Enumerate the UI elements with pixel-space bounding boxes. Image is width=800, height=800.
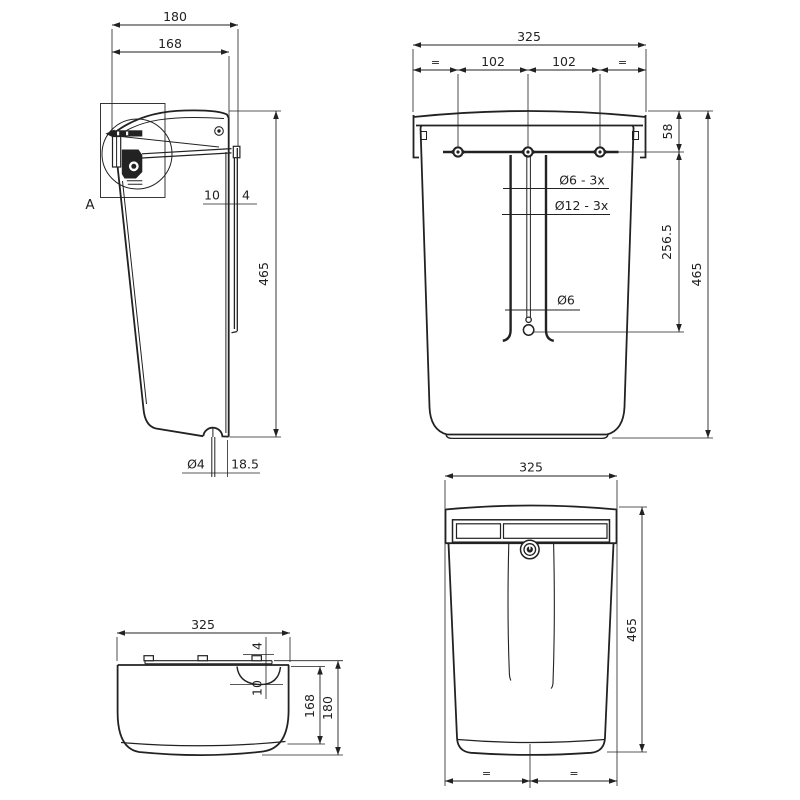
channel-walls [503, 155, 554, 341]
dim-label-top-overall-depth: 180 [320, 696, 335, 720]
technical-drawing-canvas: 180 168 465 10 4 Ø4 18.5 A [0, 0, 800, 800]
dim-label-hole-small: Ø6 - 3x [559, 173, 605, 188]
dim-label-rear-equal-left: = [431, 56, 440, 69]
front-body-bottom-inner [458, 740, 605, 743]
dim-label-keyhole: Ø6 [557, 293, 575, 308]
side-extension-lines [112, 29, 281, 477]
channel-slot-lines [527, 155, 531, 322]
dim-label-rear-slot-length: 256.5 [659, 224, 674, 260]
dim-label-side-body-depth: 168 [158, 36, 182, 51]
dim-label-top-recess-depth: 10 [250, 680, 265, 696]
dim-label-front-height: 465 [624, 618, 639, 642]
detail-a-label: A [85, 197, 95, 213]
dim-label-side-gap-plate: 4 [242, 188, 250, 203]
side-view [101, 25, 282, 477]
lock-cylinder-core [131, 164, 136, 169]
dim-label-side-drain-offset: 18.5 [231, 457, 259, 472]
lock-mechanism-bar-slit [117, 132, 119, 136]
dim-label-side-drain-hole: Ø4 [187, 457, 205, 472]
dim-label-side-gap-back: 10 [204, 188, 220, 203]
dim-label-side-overall-depth: 180 [163, 9, 187, 24]
wall-hook [233, 146, 240, 157]
dim-label-rear-height: 465 [689, 263, 704, 287]
drain-pin [212, 437, 215, 477]
dim-label-top-width: 325 [191, 617, 215, 632]
mounting-hole-right [592, 147, 609, 156]
mounting-hole-center [520, 147, 537, 156]
dim-label-rear-top-offset: 58 [660, 124, 675, 140]
top-tab-center [198, 656, 207, 661]
dim-label-rear-spacing-right: 102 [552, 54, 576, 69]
front-lock-slit [529, 546, 530, 550]
keyhole-top [526, 317, 531, 322]
dim-label-rear-width: 325 [517, 29, 541, 44]
front-body-creases [508, 543, 554, 688]
dim-label-front-equal-left: = [482, 767, 491, 780]
top-body-outline [118, 665, 289, 755]
dim-label-top-tab-height: 4 [250, 642, 265, 650]
dim-label-rear-spacing-left: 102 [481, 54, 505, 69]
top-tab-right [252, 656, 261, 661]
lock-mechanism-bar-slit2 [126, 132, 128, 136]
lock-under-lines [127, 181, 143, 184]
dim-label-rear-equal-right: = [618, 56, 627, 69]
mail-slot-panel-right [504, 524, 608, 539]
top-body-bottom-inner [121, 742, 286, 746]
top-tab-left [144, 656, 153, 661]
lid-screw-dot [217, 129, 220, 132]
keyhole-bottom [523, 325, 533, 335]
front-view [445, 476, 647, 788]
dim-label-front-width: 325 [519, 460, 543, 475]
dim-label-hole-large: Ø12 - 3x [555, 198, 609, 213]
rear-body-bottom-outer [446, 435, 608, 438]
wall-plate [232, 148, 238, 333]
dim-label-top-body-depth: 168 [302, 694, 317, 718]
mail-slot-panel-left [457, 524, 501, 539]
front-body-outline [449, 543, 614, 755]
mounting-hole-left [450, 147, 467, 156]
drawing-svg: 180 168 465 10 4 Ø4 18.5 A [0, 0, 800, 800]
dim-label-side-height: 465 [256, 262, 271, 286]
dim-label-front-equal-right: = [569, 767, 578, 780]
wall-bracket-arm [142, 149, 232, 158]
